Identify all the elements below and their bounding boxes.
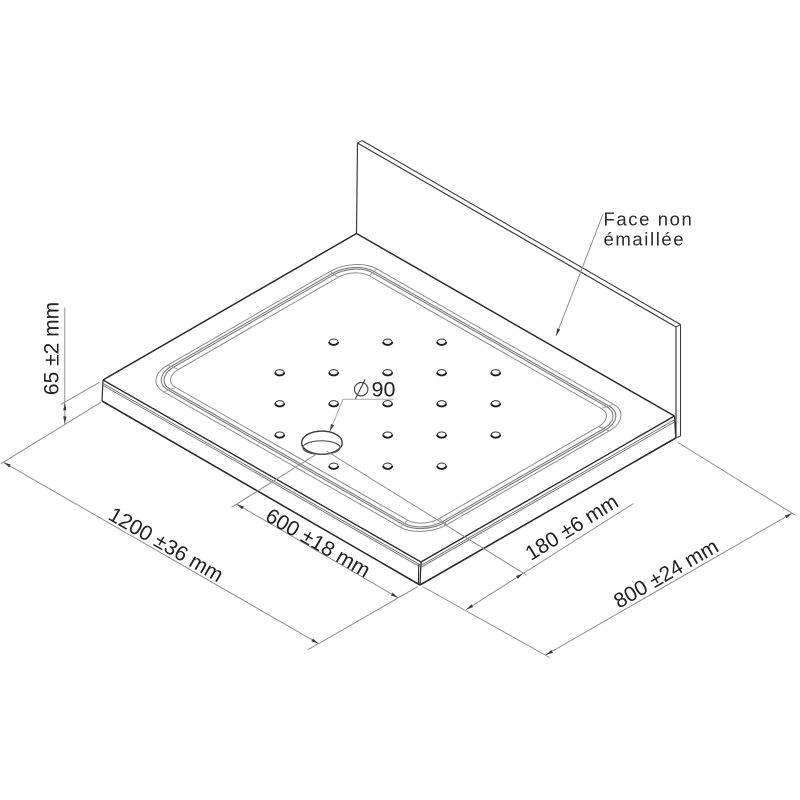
svg-text:Face non: Face non [604,209,694,230]
svg-text:émaillée: émaillée [604,229,686,250]
svg-text:90: 90 [372,378,396,402]
svg-text:65 ±2 mm: 65 ±2 mm [41,302,64,395]
